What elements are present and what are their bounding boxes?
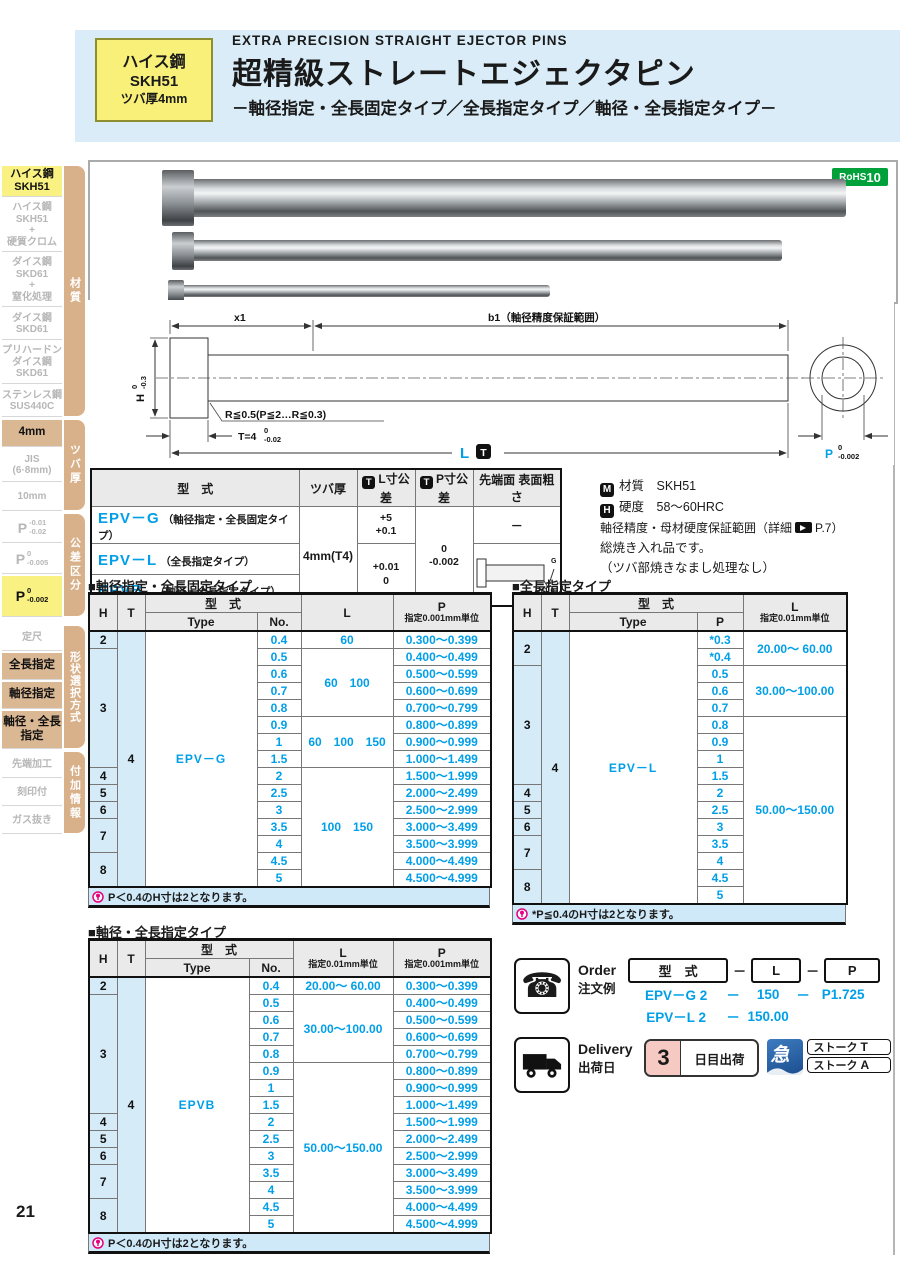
table-cell: 0.4 [249, 977, 293, 995]
table-cell: 2.5 [697, 802, 743, 819]
table-cell: 2.5 [257, 785, 301, 802]
sidebar-item-sus440c[interactable]: ステンレス鋼 SUS440C [2, 386, 62, 417]
model-desc: （全長指定タイプ） [160, 556, 255, 568]
table-epv-l: H T 型 式 L指定0.01mm単位 Type P 24EPV－L*0.320… [512, 592, 846, 925]
table-cell: 0.4 [257, 631, 301, 649]
order-example-1: EPV－G 2－150－P1.725 [628, 983, 880, 1005]
sidebar-item-prehardened-skd61[interactable]: プリハードン ダイス鋼 SKD61 [2, 342, 62, 384]
tab-material[interactable]: 材質 [64, 166, 85, 416]
table-cell: 0.9 [249, 1063, 293, 1080]
pin-photo-small-shaft [184, 285, 550, 297]
table-cell: 4 [249, 1182, 293, 1199]
sidebar-item-tol-3[interactable]: P0-0.002 [2, 576, 62, 617]
table-cell: 4 [89, 1114, 117, 1131]
table-cell: 1 [697, 751, 743, 768]
catalog-page: ハイス鋼 SKH51 ツバ厚4mm EXTRA PRECISION STRAIG… [0, 0, 900, 1271]
model-code: EPV－L [98, 552, 157, 569]
sidebar-item-gas-vent[interactable]: ガス抜き [2, 808, 62, 834]
subtitle: －軸径指定・全長固定タイプ／全長指定タイプ／軸径・全長指定タイプ－ [232, 95, 892, 119]
table-cell: 4 [257, 836, 301, 853]
sidebar-item-skd61[interactable]: ダイス鋼 SKD61 [2, 309, 62, 340]
order-box-l: L [751, 958, 801, 983]
table-row: 24EPVB0.420.00～ 60.000.300～0.399 [89, 977, 491, 995]
table-cell: 30.00～100.00 [743, 666, 847, 717]
table-cell: 0.7 [697, 700, 743, 717]
col-header-p: P指定0.001mm単位 [393, 594, 491, 632]
table-cell: 0.6 [257, 666, 301, 683]
material-badge: ハイス鋼 SKH51 ツバ厚4mm [95, 38, 213, 122]
col-header-h: H [89, 940, 117, 978]
svg-text:0: 0 [130, 385, 139, 389]
table-cell: 0.5 [697, 666, 743, 683]
svg-text:H: H [135, 394, 147, 402]
express-badge: 急 [767, 1039, 803, 1075]
model-cell: EPV－G（軸径指定・全長固定タイプ） [91, 507, 299, 544]
table-cell: 0.7 [249, 1029, 293, 1046]
table-cell: 4.5 [249, 1199, 293, 1216]
order-section: ☎ Order 注文例 型 式 － L － P EPV－G 2－150－P1.7… [514, 958, 894, 1093]
svg-text:-0.3: -0.3 [139, 376, 148, 389]
table-cell: 0.5 [249, 995, 293, 1012]
table-cell: 6 [513, 819, 541, 836]
col-header-t: T [117, 940, 145, 978]
table-cell: 1.500～1.999 [393, 1114, 491, 1131]
sidebar-item-engraving[interactable]: 刻印付 [2, 780, 62, 806]
table-cell: 2 [513, 631, 541, 666]
col-header-model: 型 式 [145, 594, 301, 613]
table-cell: 50.00～150.00 [743, 717, 847, 905]
title-english: EXTRA PRECISION STRAIGHT EJECTOR PINS [232, 33, 892, 48]
table-cell: 3 [257, 802, 301, 819]
col-header-type: Type [145, 613, 257, 632]
table-cell: 0.300～0.399 [393, 631, 491, 649]
product-photo-box: RoHS10 [88, 160, 898, 304]
table-cell: 2.000～2.499 [393, 785, 491, 802]
table-cell: 2.000～2.499 [393, 1131, 491, 1148]
stork-a-badge: ストークA [807, 1057, 891, 1073]
rohs-number: 10 [866, 170, 880, 185]
table-cell: 3.500～3.999 [393, 1182, 491, 1199]
table-cell: 4.000～4.499 [393, 853, 491, 870]
order-label-ja: 注文例 [578, 978, 616, 997]
svg-text:0: 0 [838, 443, 842, 452]
col-header-l: L指定0.01mm単位 [293, 940, 393, 978]
order-example-2: EPV－L 2－150.00 [628, 1005, 880, 1027]
table-cell: 0.6 [249, 1012, 293, 1029]
grind-mark: G [551, 558, 557, 565]
sidebar-item-4mm[interactable]: 4mm [2, 420, 62, 447]
dim-x1: x1 [234, 312, 246, 324]
sidebar-item-tip-machining[interactable]: 先端加工 [2, 752, 62, 778]
order-box-model: 型 式 [628, 958, 728, 983]
table-cell: 0.5 [257, 649, 301, 666]
dim-h: H 0 -0.3 [130, 376, 148, 402]
page-number: 21 [16, 1202, 35, 1222]
svg-text:-0.002: -0.002 [838, 452, 859, 461]
table-cell: 0.8 [697, 717, 743, 734]
table-cell: 8 [513, 870, 541, 905]
table-cell: 1.000～1.499 [393, 751, 491, 768]
table-cell: 3 [697, 819, 743, 836]
table-cell: 7 [89, 1165, 117, 1199]
table-cell: 1.500～1.999 [393, 768, 491, 785]
table-cell: 0.7 [257, 683, 301, 700]
table-cell: 100 150 [301, 768, 393, 888]
table-cell: 4 [697, 853, 743, 870]
table-row: 24EPV－G0.4600.300～0.399 [89, 631, 491, 649]
table-cell: 0.800～0.899 [393, 717, 491, 734]
table-cell: 0.500～0.599 [393, 1012, 491, 1029]
table-cell: 6 [89, 1148, 117, 1165]
tab-collar-thickness[interactable]: ツバ厚 [64, 420, 85, 510]
table-cell: 0.900～0.999 [393, 1080, 491, 1097]
note-material: M材質 SKH51 [600, 476, 892, 497]
col-header-type: Type [145, 959, 249, 978]
table-cell: 0.300～0.399 [393, 977, 491, 995]
delivery-label-en: Delivery [578, 1041, 632, 1057]
table-cell: 4.5 [697, 870, 743, 887]
table-footnote: *P≦0.4のH寸は2となります。 [512, 905, 846, 925]
table-cell: 8 [89, 1199, 117, 1234]
delivery-days-number: 3 [646, 1041, 680, 1075]
note-icon [92, 891, 104, 903]
dim-l: L [460, 445, 469, 462]
table-epv-g: H T 型 式 L P指定0.001mm単位 Type No. 24EPV－G0… [88, 592, 490, 908]
table-cell: EPV－G [145, 631, 257, 887]
tol-bot: -0.002 [27, 596, 48, 605]
table-row: 24EPV－L*0.320.00～ 60.00 [513, 631, 847, 649]
table-cell: 60 [301, 631, 393, 649]
table-cell: 5 [249, 1216, 293, 1234]
pin-photo-large-shaft [194, 179, 846, 217]
table-cell: 5 [257, 870, 301, 888]
table-cell: 20.00～ 60.00 [743, 631, 847, 666]
table-cell: 50.00～150.00 [293, 1063, 393, 1234]
table-cell: 3.000～3.499 [393, 1165, 491, 1182]
table-cell: 3 [89, 995, 117, 1114]
dim-p: P [825, 447, 833, 461]
table-cell: 5 [89, 785, 117, 802]
sidebar-item-dia-length-specified[interactable]: 軸径・全長 指定 [2, 711, 62, 749]
table-cell: 5 [697, 887, 743, 905]
tol-letter: P [16, 588, 25, 604]
table-cell: 30.00～100.00 [293, 995, 393, 1063]
table-cell: 0.9 [257, 717, 301, 734]
spec-header-ptol: TP寸公差 [415, 469, 473, 507]
badge-line1: ハイス鋼 [122, 53, 185, 73]
hardness-badge-icon: H [600, 504, 614, 518]
col-header-t: T [117, 594, 145, 632]
table-cell: 4 [117, 977, 145, 1233]
sidebar-item-jis[interactable]: JIS (6·8mm) [2, 449, 62, 482]
note-collar: （ツバ部焼きなまし処理なし） [600, 558, 892, 578]
table-cell: 1.5 [697, 768, 743, 785]
table-cell: *0.4 [697, 649, 743, 666]
table-cell: 0.900～0.999 [393, 734, 491, 751]
sidebar-item-10mm[interactable]: 10mm [2, 484, 62, 511]
pin-photo-medium-shaft [194, 240, 782, 261]
table-cell: 0.8 [249, 1046, 293, 1063]
material-badge-icon: M [600, 483, 614, 497]
l-tolerance-badge: T [480, 447, 487, 459]
order-label-en: Order [578, 962, 616, 978]
table-cell: 4 [541, 631, 569, 904]
tol-letter: P [18, 520, 27, 536]
model-code: EPV－G [98, 510, 160, 527]
sidebar-item-dia-specified[interactable]: 軸径指定 [2, 682, 62, 709]
table-cell: 6 [89, 802, 117, 819]
spec-header-ltol: TL寸公差 [357, 469, 415, 507]
sidebar-item-length-specified[interactable]: 全長指定 [2, 653, 62, 680]
table-footnote: P＜0.4のH寸は2となります。 [88, 1234, 490, 1254]
table-cell: EPV－L [569, 631, 697, 904]
table-cell: 0.600～0.699 [393, 1029, 491, 1046]
table-cell: 0.700～0.799 [393, 1046, 491, 1063]
sidebar-item-fixed-length[interactable]: 定尺 [2, 626, 62, 651]
table-cell: 2 [697, 785, 743, 802]
table-cell: 0.8 [257, 700, 301, 717]
table-cell: 4 [513, 785, 541, 802]
table-cell: 60 100 150 [301, 717, 393, 768]
table-cell: 3.5 [257, 819, 301, 836]
pin-dimension-drawing: x1 b1（軸径精度保証範囲） H 0 -0.3 R≦0.5(P≦2…R≦0.3… [88, 300, 894, 465]
table-row: EPV－G（軸径指定・全長固定タイプ） 4mm(T4) +5+0.1 0-0.0… [91, 507, 561, 544]
table-cell: 1.5 [249, 1097, 293, 1114]
col-header-l: L指定0.01mm単位 [743, 594, 847, 632]
table-cell: 60 100 [301, 649, 393, 717]
table-cell: 0.600～0.699 [393, 683, 491, 700]
table-cell: 3.500～3.999 [393, 836, 491, 853]
sidebar-item-skh51-chrome[interactable]: ハイス鋼 SKH51 + 硬質クロム [2, 199, 62, 252]
table-cell: 2 [89, 977, 117, 995]
badge-line2: SKH51 [130, 73, 178, 92]
ltol-value: +5+0.1 [357, 507, 415, 544]
col-header-h: H [89, 594, 117, 632]
table-cell: 8 [89, 853, 117, 888]
table-cell: 1.000～1.499 [393, 1097, 491, 1114]
table-cell: 2.500～2.999 [393, 1148, 491, 1165]
tol-bot: -0.005 [27, 559, 48, 568]
delivery-label-ja: 出荷日 [578, 1057, 632, 1076]
col-header-h: H [513, 594, 541, 632]
col-header-no: No. [257, 613, 301, 632]
table-cell: 3.5 [249, 1165, 293, 1182]
truck-icon [514, 1037, 570, 1093]
table-footnote: P＜0.4のH寸は2となります。 [88, 888, 490, 908]
sidebar-item-tol-2[interactable]: P0-0.005 [2, 545, 62, 574]
col-header-model: 型 式 [145, 940, 293, 959]
table-cell: 2.5 [249, 1131, 293, 1148]
note-hardened: 総焼き入れ品です。 [600, 538, 892, 558]
delivery-days: 3 日目出荷 [644, 1039, 759, 1077]
table-cell: 5 [513, 802, 541, 819]
badge-line3: ツバ厚4mm [121, 92, 188, 108]
table-cell: 0.6 [697, 683, 743, 700]
table-cell: 4.5 [257, 853, 301, 870]
pin-photo-large-head [162, 170, 194, 226]
col-header-p: P指定0.001mm単位 [393, 940, 491, 978]
table-cell: 4.000～4.499 [393, 1199, 491, 1216]
svg-text:0: 0 [264, 426, 268, 435]
note-icon [516, 908, 528, 920]
table-cell: 20.00～ 60.00 [293, 977, 393, 995]
reference-book-icon [795, 522, 812, 533]
table-cell: 2.500～2.999 [393, 802, 491, 819]
table-cell: EPVB [145, 977, 249, 1233]
table-cell: 3 [249, 1148, 293, 1165]
table-cell: 5 [89, 1131, 117, 1148]
table-cell: 3.5 [697, 836, 743, 853]
table-cell: 3 [89, 649, 117, 768]
spec-header-model: 型 式 [91, 469, 299, 507]
tol-bot: -0.02 [29, 528, 46, 537]
sidebar-item-tol-1[interactable]: P-0.01-0.02 [2, 514, 62, 543]
table-cell: 7 [513, 836, 541, 870]
t-badge-icon: T [362, 476, 375, 489]
table-cell: 0.9 [697, 734, 743, 751]
col-header-t: T [541, 594, 569, 632]
col-header-l: L [301, 594, 393, 632]
spec-header-tip: 先端面 表面粗さ [473, 469, 561, 507]
table-cell: 0.400～0.499 [393, 995, 491, 1012]
note-hardness: H硬度 58～60HRC [600, 497, 892, 518]
table-cell: 4 [89, 768, 117, 785]
table-cell: 0.700～0.799 [393, 700, 491, 717]
table-cell: 0.400～0.499 [393, 649, 491, 666]
tab-shape-selection[interactable]: 形状選択方式 [64, 626, 85, 748]
tol-letter: P [16, 551, 25, 567]
technical-drawing: x1 b1（軸径精度保証範囲） H 0 -0.3 R≦0.5(P≦2…R≦0.3… [88, 300, 894, 465]
notes-block: M材質 SKH51 H硬度 58～60HRC 軸径精度・母材硬度保証範囲（詳細P… [600, 476, 892, 578]
svg-text:-0.02: -0.02 [264, 435, 281, 444]
tab-tolerance-class[interactable]: 公差区分 [64, 514, 85, 616]
order-box-p: P [824, 958, 880, 983]
table-cell: 3.000～3.499 [393, 819, 491, 836]
tip-value: － [473, 507, 561, 544]
sidebar-item-skd61-nitride[interactable]: ダイス鋼 SKD61 + 窒化処理 [2, 254, 62, 307]
note-radius: R≦0.5(P≦2…R≦0.3) [225, 409, 326, 421]
col-header-model: 型 式 [569, 594, 743, 613]
tab-additional-info[interactable]: 付加情報 [64, 752, 85, 833]
t-badge-icon: T [420, 476, 433, 489]
title-block: EXTRA PRECISION STRAIGHT EJECTOR PINS 超精… [232, 33, 892, 119]
phone-icon: ☎ [514, 958, 570, 1014]
table-cell: 1 [249, 1080, 293, 1097]
page-title: 超精級ストレートエジェクタピン [232, 49, 892, 93]
table-cell: 2 [249, 1114, 293, 1131]
spec-header-collar: ツバ厚 [299, 469, 357, 507]
pin-photo-medium-head [172, 232, 194, 270]
table-cell: *0.3 [697, 631, 743, 649]
col-header-type: Type [569, 613, 697, 632]
table-cell: 3 [513, 666, 541, 785]
table-cell: 1.5 [257, 751, 301, 768]
sidebar-item-skh51[interactable]: ハイス鋼 SKH51 [2, 166, 62, 197]
dim-t: T=4 [238, 431, 257, 443]
table-cell: 4.500～4.999 [393, 870, 491, 888]
delivery-days-label: 日目出荷 [680, 1041, 757, 1075]
table-cell: 0.500～0.599 [393, 666, 491, 683]
table-epvb: H T 型 式 L指定0.01mm単位 P指定0.001mm単位 Type No… [88, 938, 490, 1254]
note-icon [92, 1237, 104, 1249]
table-cell: 2 [257, 768, 301, 785]
table-cell: 7 [89, 819, 117, 853]
table-cell: 4 [117, 631, 145, 887]
dim-b1: b1（軸径精度保証範囲） [488, 311, 605, 324]
note-accuracy: 軸径精度・母材硬度保証範囲（詳細P.7） [600, 518, 892, 538]
table-cell: 1 [257, 734, 301, 751]
table-cell: 2 [89, 631, 117, 649]
table-cell: 4.500～4.999 [393, 1216, 491, 1234]
order-format-row: 型 式 － L － P [628, 958, 880, 983]
stork-t-badge: ストークT [807, 1039, 891, 1055]
table-cell: 0.800～0.899 [393, 1063, 491, 1080]
col-header-p: P [697, 613, 743, 632]
model-cell: EPV－L（全長指定タイプ） [91, 544, 299, 575]
col-header-no: No. [249, 959, 293, 978]
